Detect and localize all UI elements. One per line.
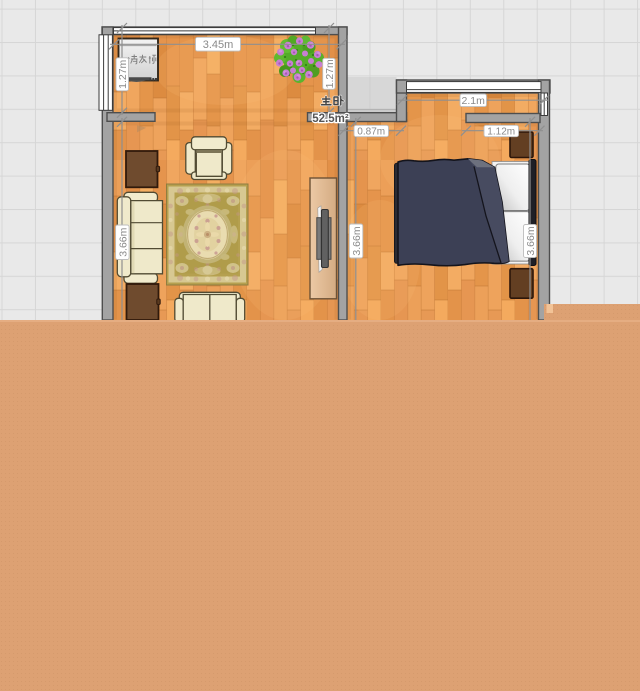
svg-text:1.27m: 1.27m bbox=[117, 59, 129, 88]
svg-text:3.66m: 3.66m bbox=[351, 226, 363, 255]
svg-text:0.87m: 0.87m bbox=[357, 126, 385, 137]
svg-text:1.27m: 1.27m bbox=[324, 59, 336, 88]
svg-text:2.1m: 2.1m bbox=[462, 95, 486, 107]
svg-text:3.45m: 3.45m bbox=[203, 39, 234, 51]
svg-text:3.66m: 3.66m bbox=[525, 226, 537, 255]
svg-text:52.5m²: 52.5m² bbox=[312, 113, 349, 125]
svg-text:1.12m: 1.12m bbox=[487, 126, 515, 137]
svg-text:3.66m: 3.66m bbox=[117, 227, 129, 256]
